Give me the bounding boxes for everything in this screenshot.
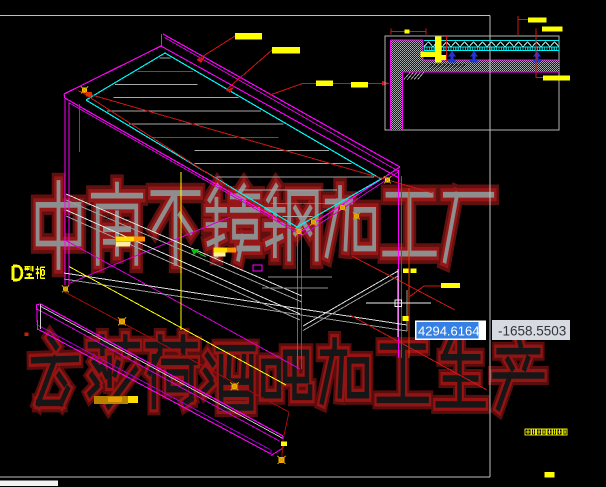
- svg-text:4294.6164: 4294.6164: [418, 324, 479, 339]
- svg-text:-1658.5503: -1658.5503: [498, 324, 566, 339]
